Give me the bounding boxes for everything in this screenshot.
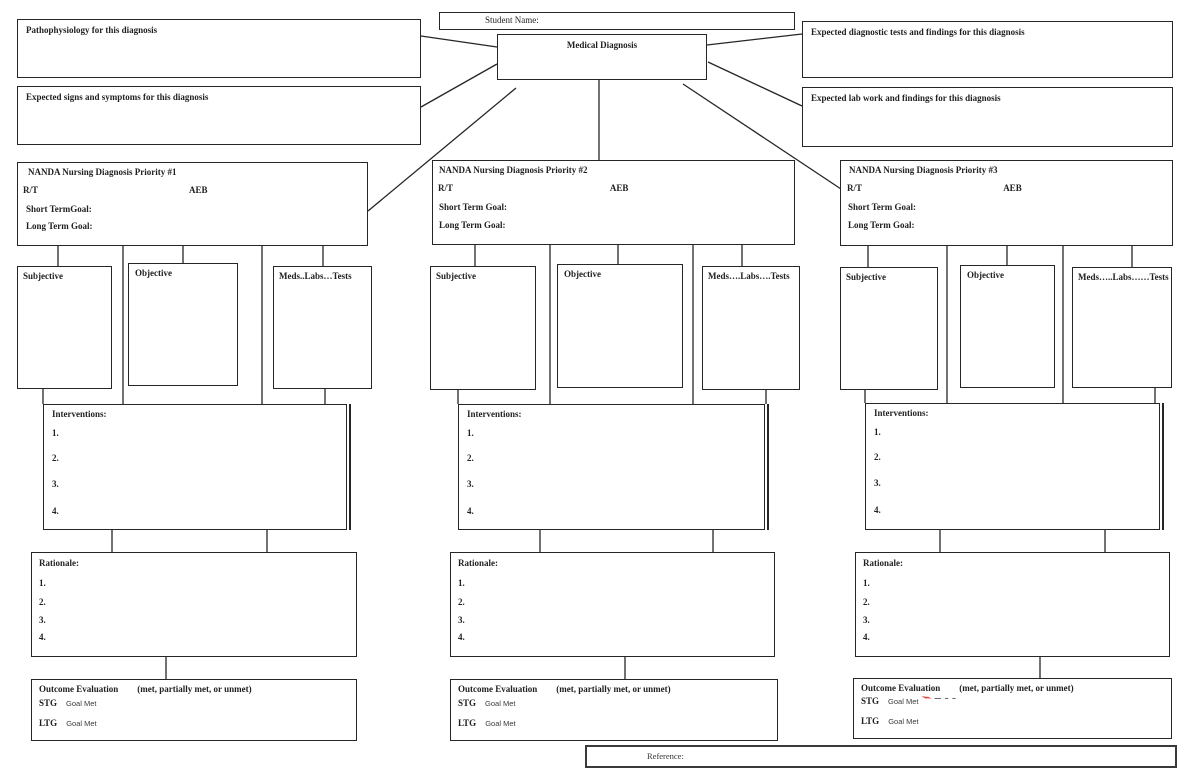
- student-name-box[interactable]: Student Name:: [439, 12, 795, 30]
- interventions-box-1[interactable]: Interventions: 1. 2. 3. 4.: [43, 404, 347, 530]
- nanda-box-2[interactable]: NANDA Nursing Diagnosis Priority #2 R/T …: [432, 160, 795, 245]
- rationale-box-2[interactable]: Rationale: 1. 2. 3. 4.: [450, 552, 775, 657]
- lab-work-label: Expected lab work and findings for this …: [811, 93, 1001, 103]
- outcome-evaluation-label: Outcome Evaluation: [861, 683, 940, 693]
- intervention-item: 3.: [874, 478, 881, 488]
- outcome-evaluation-box-3[interactable]: Outcome Evaluation (met, partially met, …: [853, 678, 1172, 739]
- meds-labs-tests-box-1[interactable]: Meds..Labs…Tests: [273, 266, 372, 389]
- red-pen-mark-icon: [921, 695, 932, 701]
- pathophysiology-box[interactable]: Pathophysiology for this diagnosis: [17, 19, 421, 78]
- stg-value: Goal Met: [888, 697, 918, 706]
- intervention-item: 3.: [467, 479, 474, 489]
- interventions-box-3[interactable]: Interventions: 1. 2. 3. 4.: [865, 403, 1160, 530]
- signs-symptoms-box[interactable]: Expected signs and symptoms for this dia…: [17, 86, 421, 145]
- nanda-box-1[interactable]: NANDA Nursing Diagnosis Priority #1 R/T …: [17, 162, 368, 246]
- rationale-item: 1.: [39, 578, 46, 588]
- objective-label: Objective: [564, 269, 601, 279]
- aeb-label: AEB: [610, 183, 629, 193]
- outcome-evaluation-label: Outcome Evaluation: [458, 684, 537, 694]
- ltg-label: LTG: [39, 718, 57, 728]
- intervention-item: 4.: [467, 506, 474, 516]
- objective-label: Objective: [135, 268, 172, 278]
- outcome-evaluation-note: (met, partially met, or unmet): [137, 684, 251, 694]
- outcome-evaluation-label: Outcome Evaluation: [39, 684, 118, 694]
- rationale-item: 3.: [458, 615, 465, 625]
- ltg-label: LTG: [861, 716, 879, 726]
- rt-label: R/T: [847, 183, 862, 193]
- subjective-box-3[interactable]: Subjective: [840, 267, 938, 390]
- rationale-item: 4.: [863, 632, 870, 642]
- outcome-evaluation-box-2[interactable]: Outcome Evaluation (met, partially met, …: [450, 679, 778, 741]
- intervention-item: 1.: [467, 428, 474, 438]
- objective-label: Objective: [967, 270, 1004, 280]
- intervention-item: 3.: [52, 479, 59, 489]
- rationale-item: 3.: [39, 615, 46, 625]
- rationale-box-3[interactable]: Rationale: 1. 2. 3. 4.: [855, 552, 1170, 657]
- nanda-title: NANDA Nursing Diagnosis Priority #1: [28, 167, 177, 177]
- concept-map-page: Pathophysiology for this diagnosis Expec…: [0, 0, 1200, 776]
- nanda-title: NANDA Nursing Diagnosis Priority #3: [849, 165, 998, 175]
- stg-label: STG: [861, 696, 879, 706]
- objective-box-2[interactable]: Objective: [557, 264, 683, 388]
- meds-labs-tests-label: Meds…..Labs……Tests: [1078, 272, 1169, 282]
- interventions-label: Interventions:: [467, 409, 522, 419]
- medical-diagnosis-label: Medical Diagnosis: [498, 40, 706, 50]
- connector-line: [421, 36, 497, 47]
- signs-symptoms-label: Expected signs and symptoms for this dia…: [26, 92, 208, 102]
- pen-dashes: — – –: [934, 695, 956, 702]
- pathophysiology-label: Pathophysiology for this diagnosis: [26, 25, 157, 35]
- stg-label: STG: [39, 698, 57, 708]
- rationale-label: Rationale:: [863, 558, 903, 568]
- subjective-label: Subjective: [846, 272, 886, 282]
- intervention-item: 4.: [52, 506, 59, 516]
- intervention-item: 2.: [52, 453, 59, 463]
- objective-box-3[interactable]: Objective: [960, 265, 1055, 388]
- long-term-goal-label: Long Term Goal:: [848, 220, 915, 230]
- subjective-box-1[interactable]: Subjective: [17, 266, 112, 389]
- connector-line: [708, 62, 802, 106]
- nanda-box-3[interactable]: NANDA Nursing Diagnosis Priority #3 R/T …: [840, 160, 1173, 246]
- short-term-goal-label: Short Term Goal:: [439, 202, 507, 212]
- rationale-item: 4.: [458, 632, 465, 642]
- interventions-label: Interventions:: [874, 408, 929, 418]
- rationale-item: 1.: [863, 578, 870, 588]
- meds-labs-tests-label: Meds..Labs…Tests: [279, 271, 352, 281]
- connector-line: [707, 34, 802, 45]
- outcome-evaluation-box-1[interactable]: Outcome Evaluation (met, partially met, …: [31, 679, 357, 741]
- nanda-title: NANDA Nursing Diagnosis Priority #2: [439, 165, 588, 175]
- aeb-label: AEB: [189, 185, 208, 195]
- meds-labs-tests-label: Meds….Labs….Tests: [708, 271, 790, 281]
- subjective-label: Subjective: [436, 271, 476, 281]
- subjective-box-2[interactable]: Subjective: [430, 266, 536, 390]
- connector-line: [421, 64, 497, 107]
- long-term-goal-label: Long Term Goal:: [439, 220, 506, 230]
- meds-labs-tests-box-2[interactable]: Meds….Labs….Tests: [702, 266, 800, 390]
- rt-label: R/T: [23, 185, 38, 195]
- diagnostic-tests-box[interactable]: Expected diagnostic tests and findings f…: [802, 21, 1173, 78]
- long-term-goal-label: Long Term Goal:: [26, 221, 93, 231]
- ltg-value: Goal Met: [485, 719, 515, 728]
- rationale-item: 4.: [39, 632, 46, 642]
- subjective-label: Subjective: [23, 271, 63, 281]
- aeb-label: AEB: [1003, 183, 1022, 193]
- meds-labs-tests-box-3[interactable]: Meds…..Labs……Tests: [1072, 267, 1172, 388]
- ltg-value: Goal Met: [66, 719, 96, 728]
- rationale-item: 2.: [863, 597, 870, 607]
- rationale-label: Rationale:: [458, 558, 498, 568]
- intervention-item: 1.: [874, 427, 881, 437]
- stg-label: STG: [458, 698, 476, 708]
- rationale-label: Rationale:: [39, 558, 79, 568]
- student-name-label: Student Name:: [485, 15, 539, 25]
- intervention-item: 4.: [874, 505, 881, 515]
- medical-diagnosis-box[interactable]: Medical Diagnosis: [497, 34, 707, 80]
- outcome-evaluation-note: (met, partially met, or unmet): [959, 683, 1073, 693]
- intervention-item: 2.: [874, 452, 881, 462]
- rationale-item: 2.: [39, 597, 46, 607]
- outcome-evaluation-note: (met, partially met, or unmet): [556, 684, 670, 694]
- objective-box-1[interactable]: Objective: [128, 263, 238, 386]
- short-term-goal-label: Short TermGoal:: [26, 204, 92, 214]
- short-term-goal-label: Short Term Goal:: [848, 202, 916, 212]
- interventions-label: Interventions:: [52, 409, 107, 419]
- ltg-value: Goal Met: [888, 717, 918, 726]
- intervention-item: 1.: [52, 428, 59, 438]
- rationale-box-1[interactable]: Rationale: 1. 2. 3. 4.: [31, 552, 357, 657]
- interventions-box-2[interactable]: Interventions: 1. 2. 3. 4.: [458, 404, 765, 530]
- stg-value: Goal Met: [485, 699, 515, 708]
- intervention-item: 2.: [467, 453, 474, 463]
- rationale-item: 2.: [458, 597, 465, 607]
- rt-label: R/T: [438, 183, 453, 193]
- rationale-item: 1.: [458, 578, 465, 588]
- diagnostic-tests-label: Expected diagnostic tests and findings f…: [811, 27, 1025, 37]
- stg-value: Goal Met: [66, 699, 96, 708]
- reference-label: Reference:: [647, 751, 684, 761]
- reference-box[interactable]: Reference:: [585, 745, 1177, 768]
- rationale-item: 3.: [863, 615, 870, 625]
- lab-work-box[interactable]: Expected lab work and findings for this …: [802, 87, 1173, 147]
- ltg-label: LTG: [458, 718, 476, 728]
